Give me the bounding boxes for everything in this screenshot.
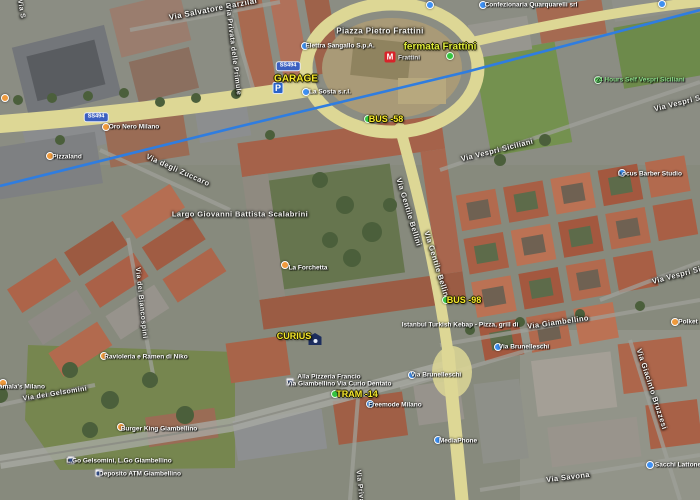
- poi-label[interactable]: Polket: [678, 319, 698, 326]
- satellite-map[interactable]: Via Salvatore BarzilaiVia SVia Privata d…: [0, 0, 700, 500]
- poi-label[interactable]: Alla Pizzeria Francio: [297, 374, 360, 381]
- street-label: Via Privata: [354, 470, 365, 500]
- poi-label[interactable]: Via Brunelleschi: [411, 372, 461, 379]
- poi-label[interactable]: 24 Hours Self Vespri Siciliani: [595, 77, 684, 84]
- transit-stop-icon[interactable]: [446, 52, 454, 60]
- street-label: Via Gentile Bellini: [422, 230, 451, 300]
- street-label: Largo Giovanni Battista Scalabrini: [172, 210, 308, 219]
- street-label: Via Savona: [546, 470, 591, 484]
- street-label: Via Giambellino: [527, 313, 590, 331]
- blue-poi-icon[interactable]: [658, 0, 666, 8]
- poi-label[interactable]: Burger King Giambellino: [121, 426, 198, 433]
- street-label: Via Giacinto Bruzzesi: [635, 347, 670, 430]
- poi-label[interactable]: Locus Barber Studio: [618, 171, 682, 178]
- street-label: Via Vespri Siciliani: [653, 87, 700, 114]
- transit-label[interactable]: fermata Frattini: [404, 42, 477, 53]
- street-label: Piazza Pietro Frattini: [336, 27, 423, 36]
- street-label: Via S: [16, 0, 26, 19]
- poi-label[interactable]: Deposito ATM Giambellino: [99, 471, 181, 478]
- street-label: Via Gentile Bellini: [394, 177, 423, 247]
- poi-label[interactable]: Freemode Milano: [368, 402, 421, 409]
- blue-poi-icon[interactable]: [646, 461, 654, 469]
- street-label: Via dei Biancospini: [134, 267, 148, 339]
- poi-label[interactable]: Frattini: [398, 55, 420, 62]
- transit-label[interactable]: TRAM -14: [336, 389, 378, 399]
- metro-m-icon[interactable]: M: [385, 52, 396, 63]
- transit-label[interactable]: BUS -98: [447, 295, 482, 305]
- poi-label[interactable]: La Forchetta: [288, 265, 327, 272]
- street-label: Via Vespri Siciliani: [651, 258, 700, 286]
- poi-label[interactable]: MediaPhone: [439, 438, 477, 445]
- transit-label[interactable]: BUS -58: [369, 114, 404, 124]
- poi-label[interactable]: Istanbul Turkish Kebap - Pizza, grill di: [402, 322, 519, 329]
- street-label: Via Salvatore Barzilai: [168, 0, 258, 22]
- poi-label[interactable]: Via Brunelleschi: [499, 344, 549, 351]
- blue-poi-icon[interactable]: [426, 1, 434, 9]
- poi-label[interactable]: L.Go Gelsomini, L.Go Giambellino: [66, 458, 171, 465]
- transit-label[interactable]: CURIUS: [277, 331, 312, 341]
- poi-label[interactable]: Ravioleria e Ramen di Niko: [104, 354, 187, 361]
- poi-label[interactable]: Pizzaland: [52, 154, 82, 161]
- street-label: Via Vespri Siciliani: [460, 137, 534, 164]
- poi-label[interactable]: Oro Nero Milano: [109, 124, 160, 131]
- route-shield: SS494: [84, 112, 109, 122]
- poi-label[interactable]: amala's Milano: [0, 384, 45, 391]
- route-shield: SS494: [276, 61, 301, 71]
- poi-label[interactable]: Sacchi Lattoneria: [655, 462, 700, 469]
- street-label: Via Privata delle Primule: [224, 4, 242, 95]
- street-label: Via degli Zuccaro: [145, 152, 211, 188]
- poi-label[interactable]: Confezionaria Quarquarelli srl: [485, 2, 578, 9]
- poi-label[interactable]: Via Giambellino Via Curio Dentato: [287, 381, 392, 388]
- map-label-layer: Via Salvatore BarzilaiVia SVia Privata d…: [0, 0, 700, 500]
- poi-label[interactable]: La Sosta s.r.l.: [309, 89, 351, 96]
- transit-label[interactable]: GARAGE: [274, 74, 318, 85]
- poi-label[interactable]: Elettra Sangallo S.p.A.: [305, 43, 374, 50]
- orange-poi-icon[interactable]: [1, 94, 9, 102]
